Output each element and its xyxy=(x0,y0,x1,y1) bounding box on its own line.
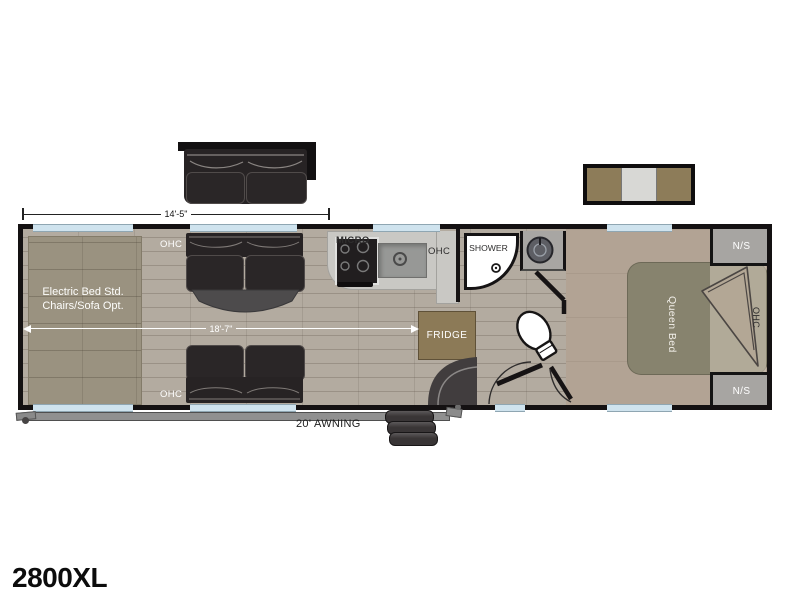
ohc-label-kitchen: OHC xyxy=(428,246,450,257)
optional-table-seat-right xyxy=(657,168,691,201)
awning-label: 20' AWNING xyxy=(296,418,361,430)
optional-table xyxy=(583,164,695,205)
queen-bed-label: Queen Bed xyxy=(666,296,678,353)
dimension-tick-right xyxy=(328,208,330,220)
ohc-label-bedroom: OHC xyxy=(751,307,761,328)
garage-note: Electric Bed Std. Chairs/Sofa Opt. xyxy=(28,286,138,313)
window-top-garage xyxy=(33,224,133,232)
dimension-arrow-right xyxy=(411,325,419,333)
floorplan-canvas: 14'-5" FRIDGE N/S N/S xyxy=(0,0,800,600)
entry-step-3 xyxy=(389,432,438,446)
garage-dimension-label: 14'-5" xyxy=(161,209,192,219)
optional-table-center xyxy=(621,168,656,201)
optional-table-top xyxy=(587,168,691,201)
awning-hook-icon xyxy=(455,404,461,410)
window-top-dinette xyxy=(190,224,297,232)
rv-exterior-walls xyxy=(18,224,772,410)
window-bottom-dinette xyxy=(190,404,296,412)
model-name: 2800XL xyxy=(12,562,107,594)
entry-door-opening xyxy=(495,404,525,412)
ohc-label-top: OHC xyxy=(160,239,182,250)
window-bottom-garage xyxy=(33,404,133,412)
optional-table-seat-left xyxy=(587,168,621,201)
jack-wheel-icon xyxy=(22,417,29,424)
window-top-kitchen xyxy=(373,224,440,232)
garage-dimension: 14'-5" xyxy=(22,208,330,220)
micro-label: MICRO xyxy=(336,235,370,246)
window-top-bedroom xyxy=(607,224,672,232)
optional-sofa-cushion-right xyxy=(246,172,307,204)
interior-dimension: 18'-7" xyxy=(23,322,419,335)
interior-dimension-label: 18'-7" xyxy=(206,324,237,334)
window-bottom-bedroom xyxy=(607,404,672,412)
ohc-label-bottom: OHC xyxy=(160,389,182,400)
optional-sofa-cushion-left xyxy=(186,172,245,204)
dimension-arrow-left xyxy=(23,325,31,333)
shower-label: SHOWER xyxy=(464,243,513,253)
